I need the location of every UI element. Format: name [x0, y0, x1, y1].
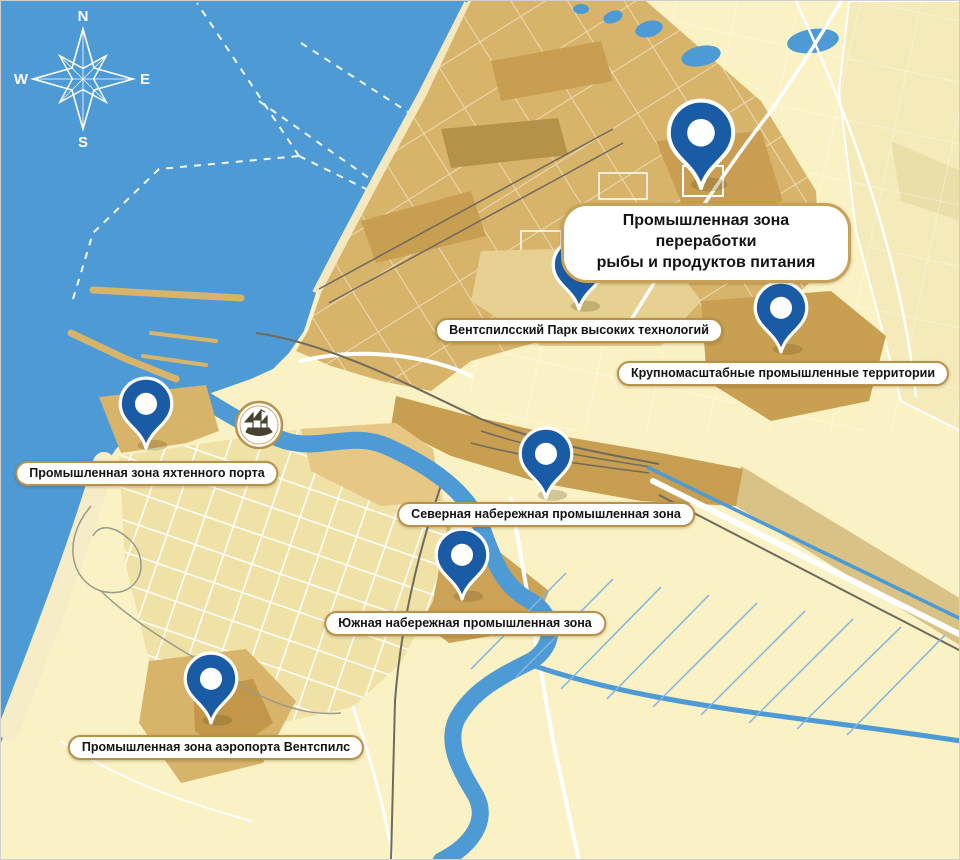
label-yacht-port: Промышленная зона яхтенного порта: [15, 461, 278, 486]
label-fish-food-processing: Промышленная зона переработки рыбы и про…: [561, 203, 851, 283]
compass-west: W: [14, 71, 29, 88]
label-south-embankment: Южная набережная промышленная зона: [324, 611, 606, 636]
compass-north: N: [78, 8, 89, 25]
label-high-tech-park: Вентспилсский Парк высоких технологий: [435, 318, 723, 343]
label-north-embankment: Северная набережная промышленная зона: [397, 502, 695, 527]
compass-south: S: [78, 134, 88, 151]
map-canvas: N E S W: [1, 1, 960, 860]
label-large-scale-industrial: Крупномасштабные промышленные территории: [617, 361, 949, 386]
ship-emblem: [236, 402, 282, 448]
ventspils-industrial-zones-map: N E S W Промышленная зона переработки ры…: [0, 0, 960, 860]
label-airport: Промышленная зона аэропорта Вентспилс: [68, 735, 364, 760]
compass-east: E: [140, 71, 150, 88]
